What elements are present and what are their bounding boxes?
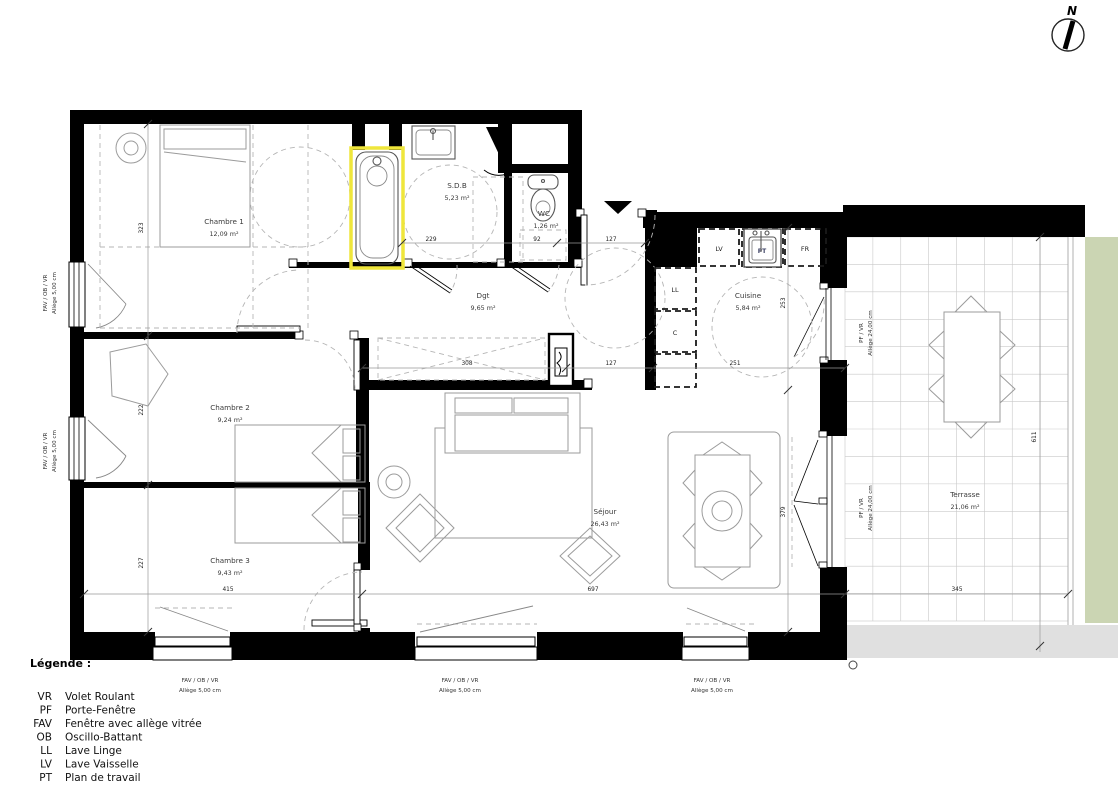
dim-sejour-height: 379 (781, 506, 787, 517)
label-lv: LV (715, 245, 723, 253)
legend-label: Lave Linge (65, 745, 122, 757)
dining-set (668, 432, 780, 588)
legend-abbr: LL (40, 745, 52, 757)
kitchen-sink: PT (744, 229, 781, 267)
bot2-fav-label: FAV / OB / VR (442, 678, 479, 684)
terrace-slab (847, 625, 1118, 669)
area-chambre3: 9,43 m² (217, 569, 242, 577)
compass-needle-icon (1065, 21, 1073, 49)
terr2-pf-label: PF / VR (859, 498, 865, 518)
area-cuisine: 5,84 m² (735, 304, 760, 312)
legend-label: Oscillo-Battant (65, 732, 142, 744)
dim-hall-width: 308 (461, 361, 472, 367)
terr1-allege-label: Allège 24,00 cm (867, 310, 874, 355)
door-chambre1 (237, 270, 303, 339)
legend-label: Volet Roulant (65, 691, 135, 703)
door-cuisine-terrasse (794, 283, 831, 363)
area-sejour: 26,43 m² (590, 520, 620, 528)
floor-plan: PT (0, 0, 1118, 800)
dim-sdb-width: 229 (425, 237, 436, 243)
terrace-tiles (845, 237, 1073, 625)
legend-label: Plan de travail (65, 772, 141, 784)
left2-fav-label: FAV / OB / VR (43, 432, 49, 469)
dim-cuisine-height: 253 (781, 297, 787, 308)
area-dgt: 9,65 m² (470, 304, 495, 312)
bot2-allege-label: Allège 5,00 cm (439, 687, 481, 694)
legend-title: Légende : (30, 657, 91, 670)
legend-label: Lave Vaisselle (65, 759, 139, 771)
dashed-guides (100, 125, 566, 380)
bottom-window-ch3 (153, 607, 232, 660)
dim-entry-width: 127 (605, 237, 616, 243)
left2-allege-label: Allège 5,00 cm (51, 430, 58, 472)
dim-cuisine-width: 251 (729, 361, 740, 367)
legend-abbr: FAV (33, 718, 53, 730)
vegetation-strip (1085, 237, 1118, 623)
left-window-ch2 (69, 417, 126, 480)
sejour-wall-jamb (289, 259, 592, 388)
dim-ch1-height: 323 (139, 222, 145, 233)
bottom-window-sejour-2 (682, 608, 757, 660)
entrance-arrow-icon (604, 201, 632, 214)
label-terrasse: Terrasse (949, 490, 980, 499)
label-chambre3: Chambre 3 (210, 556, 250, 565)
label-dgt: Dgt (477, 291, 490, 300)
area-sdb: 5,23 m² (444, 194, 469, 202)
label-wc: WC (538, 209, 550, 218)
label-chambre1: Chambre 1 (204, 217, 244, 226)
left1-fav-label: FAV / OB / VR (43, 274, 49, 311)
electrical-box (549, 334, 573, 386)
label-ll: LL (671, 286, 679, 294)
sdb-sink (412, 126, 455, 159)
dim-ch2-height: 222 (139, 404, 145, 415)
area-chambre1: 12,09 m² (209, 230, 239, 238)
area-chambre2: 9,24 m² (217, 416, 242, 424)
label-sdb: S.D.B (447, 181, 467, 190)
left-window-ch1 (69, 262, 126, 328)
label-c: C (673, 329, 678, 337)
kitchen-pt-label: PT (758, 248, 767, 255)
door-sejour-terrasse (792, 431, 832, 568)
area-terrasse: 21,06 m² (950, 503, 980, 511)
dim-ch3-height: 227 (139, 557, 145, 568)
bot1-fav-label: FAV / OB / VR (182, 678, 219, 684)
dim-wc-width: 92 (533, 237, 541, 243)
terr1-pf-label: PF / VR (859, 323, 865, 343)
bot3-fav-label: FAV / OB / VR (694, 678, 731, 684)
sejour-furniture (378, 393, 620, 584)
bathtub[interactable] (351, 148, 403, 268)
terrace-table (929, 296, 1015, 438)
legend-label: Porte-Fenêtre (65, 705, 136, 717)
chambre3-furniture (235, 488, 365, 543)
legend-abbr: VR (38, 691, 52, 703)
area-wc: 1,26 m² (533, 222, 558, 230)
legend-abbr: OB (37, 732, 52, 744)
dim-sejour-width: 697 (587, 587, 598, 593)
dim-terrasse-height: 611 (1032, 431, 1038, 442)
compass: N (1052, 4, 1084, 51)
chambre1-furniture (116, 125, 250, 247)
bot3-allege-label: Allège 5,00 cm (691, 687, 733, 694)
legend-abbr: PT (39, 772, 52, 784)
legend-abbr: LV (40, 759, 53, 771)
legend-label: Fenêtre avec allège vitrée (65, 718, 202, 730)
dim-terrasse-width: 345 (951, 587, 962, 593)
legend: Légende : VR Volet Roulant PF Porte-Fenê… (30, 657, 202, 784)
terr2-allege-label: Allège 24,00 cm (867, 485, 874, 530)
label-chambre2: Chambre 2 (210, 403, 250, 412)
label-fr: FR (801, 245, 810, 253)
bot1-allege-label: Allège 5,00 cm (179, 687, 221, 694)
legend-abbr: PF (40, 705, 52, 717)
label-cuisine: Cuisine (735, 291, 762, 300)
left1-allege-label: Allège 5,00 cm (51, 272, 58, 314)
label-sejour: Séjour (594, 507, 617, 516)
door-chambre2 (305, 331, 360, 390)
dim-ch3-width: 415 (222, 587, 233, 593)
compass-north-label: N (1067, 4, 1077, 18)
dim-hall-entry-width: 127 (605, 361, 616, 367)
